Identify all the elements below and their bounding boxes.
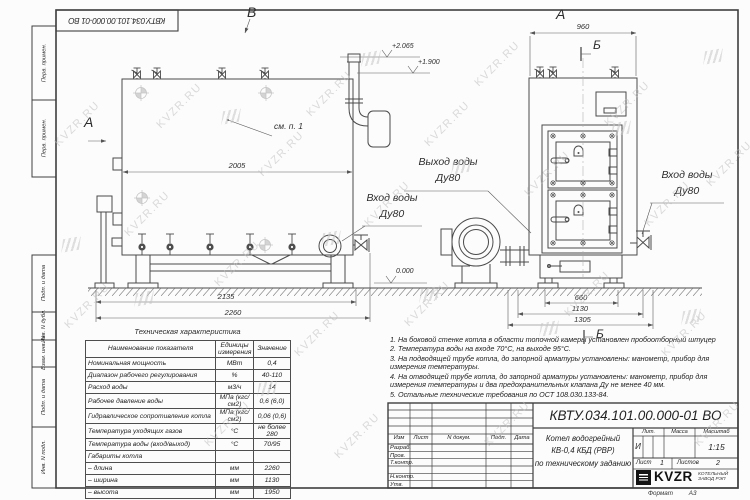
table-row: Гидравлическое сопротивление котлаМПа (к… (86, 409, 291, 424)
row-tkontr: Т.контр. (390, 460, 413, 466)
margin-label-2: Перв. примен. (32, 131, 56, 145)
note-5: 5. Остальные технические требования по О… (390, 391, 722, 399)
spec-cell: 1950 (254, 487, 291, 499)
note-4: 4. На отводящей трубе котла, до запорной… (390, 373, 722, 390)
spec-cell: Диапазон рабочего регулирования (86, 370, 216, 382)
spec-cell (254, 451, 291, 463)
spec-cell: мм (216, 475, 254, 487)
margin-label-5: Взам. инв. N (32, 346, 56, 360)
dim-2005: 2005 (207, 161, 267, 170)
scale-value: 1:15 (695, 442, 738, 452)
brand-subtitle-line2: ЗАВОД РЭП (698, 477, 736, 483)
format-label: Формат А3 (648, 490, 696, 497)
table-row: – ширинамм1130 (86, 475, 291, 487)
spec-cell: – ширина (86, 475, 216, 487)
table-row: Диапазон рабочего регулирования%40-110 (86, 370, 291, 382)
scale-header: Масштаб (695, 429, 738, 435)
spec-cell: Рабочее давление воды (86, 394, 216, 409)
top-stamp-doc-number: КВТУ.034.101.00.000-01 ВО (56, 10, 178, 31)
lit-header: Лит. (633, 429, 664, 435)
outlet-label-line2: Ду80 (406, 172, 490, 184)
see-note-callout: см. п. 1 (274, 121, 303, 131)
technical-notes: 1. На боковой стенке котла в области топ… (390, 336, 722, 400)
spec-table-title: Техническая характеристика (85, 327, 290, 336)
sheets-label: Листов (677, 460, 699, 466)
table-row: Температура воды (вход/выход)°С70/95 (86, 439, 291, 451)
lit-value: И (633, 442, 643, 451)
brand-subtitle: КОТЕЛЬНЫЙ ЗАВОД РЭП (698, 472, 736, 484)
spec-cell: 0,4 (254, 358, 291, 370)
title-block-doc-number: КВТУ.034.101.00.000-01 ВО (535, 405, 736, 426)
inlet-label-left-line2: Ду80 (352, 208, 432, 220)
spec-table: Наименование показателя Единицы измерени… (85, 340, 291, 499)
dim-1305: 1305 (550, 315, 615, 324)
spec-cell: МВт (216, 358, 254, 370)
spec-header-name: Наименование показателя (86, 341, 216, 358)
drawing-sheet: Перв. примен. Перв. примен. Подп. и дата… (0, 0, 750, 500)
spec-cell: 14 (254, 382, 291, 394)
spec-cell: м3/ч (216, 382, 254, 394)
note-3: 3. На подводящей трубе котла, до запорно… (390, 355, 722, 372)
col-data: Дата (511, 435, 533, 441)
format-size: А3 (689, 490, 697, 497)
elevation-mark-mid: +1.900 (418, 59, 440, 66)
dim-660: 660 (551, 293, 611, 302)
kvzr-logo-icon (636, 470, 651, 485)
product-title: Котел водогрейный КВ-0,4 КБД (РВР) по те… (534, 433, 632, 470)
spec-cell: мм (216, 487, 254, 499)
spec-cell: Гидравлическое сопротивление котла (86, 409, 216, 424)
spec-cell: мм (216, 463, 254, 475)
spec-cell: МПа (кгс/см2) (216, 409, 254, 424)
product-title-line3: по техническому заданию (534, 458, 632, 470)
spec-cell: 2260 (254, 463, 291, 475)
elevation-mark-top: +2.065 (392, 43, 414, 50)
outlet-label-line1: Выход воды (406, 156, 490, 168)
spec-cell: Температура уходящих газов (86, 424, 216, 439)
product-title-line1: Котел водогрейный (534, 433, 632, 445)
spec-cell: 0,6 (6,0) (254, 394, 291, 409)
spec-cell: °С (216, 424, 254, 439)
row-razrab: Разраб. (390, 445, 411, 451)
table-row: Номинальная мощностьМВт0,4 (86, 358, 291, 370)
margin-label-7: Инв. N подл. (32, 450, 56, 464)
spec-header-value: Значение (254, 341, 291, 358)
table-row: – длинамм2260 (86, 463, 291, 475)
inlet-label-right-line2: Ду80 (647, 185, 727, 197)
inlet-label-left-line1: Вход воды (352, 192, 432, 204)
elevation-mark-zero: 0.000 (396, 268, 414, 275)
sheet-label: Лист (636, 460, 651, 466)
spec-cell: не более 280 (254, 424, 291, 439)
spec-cell: 70/95 (254, 439, 291, 451)
row-utv: Утв. (390, 482, 403, 488)
col-dokum: N докум. (432, 435, 486, 441)
format-word: Формат (648, 490, 673, 497)
product-title-line2: КВ-0,4 КБД (РВР) (534, 445, 632, 457)
row-prov: Пров. (390, 453, 405, 459)
table-row: Температура уходящих газов°Сне более 280 (86, 424, 291, 439)
spec-cell: % (216, 370, 254, 382)
col-list: Лист (410, 435, 432, 441)
note-1: 1. На боковой стенке котла в области топ… (390, 336, 722, 344)
row-nkontr: Н.контр. (390, 474, 415, 480)
spec-cell: °С (216, 439, 254, 451)
margin-label-3: Подп. и дата (32, 276, 56, 290)
margin-label-4: Инв. N дубл. (32, 319, 56, 333)
spec-cell: Расход воды (86, 382, 216, 394)
note-2: 2. Температура воды на входе 70°С, на вы… (390, 345, 722, 353)
spec-header-row: Наименование показателя Единицы измерени… (86, 341, 291, 358)
spec-cell (216, 451, 254, 463)
spec-cell: 1130 (254, 475, 291, 487)
left-view-boiler-side (95, 54, 390, 288)
spec-cell: – длина (86, 463, 216, 475)
view-arrow-label-a-left: А (84, 114, 93, 130)
dim-960: 960 (553, 22, 613, 31)
spec-cell: 40-110 (254, 370, 291, 382)
coil-glyph-icon (639, 473, 648, 482)
dim-2135: 2135 (196, 292, 256, 301)
table-row: – высотамм1950 (86, 487, 291, 499)
brand-name: KVZR (654, 469, 693, 484)
table-row: Рабочее давление водыМПа (кгс/см2)0,6 (6… (86, 394, 291, 409)
table-row: Расход водым3/ч14 (86, 382, 291, 394)
sheets-value: 2 (716, 460, 720, 467)
spec-cell: Температура воды (вход/выход) (86, 439, 216, 451)
col-podp: Подп. (486, 435, 511, 441)
spec-cell: – высота (86, 487, 216, 499)
margin-label-1: Перв. примен. (32, 56, 56, 70)
dim-2260: 2260 (203, 308, 263, 317)
spec-cell: Габариты котла (86, 451, 216, 463)
inlet-label-right-line1: Вход воды (647, 169, 727, 181)
col-izm: Изм (388, 435, 410, 441)
spec-header-units: Единицы измерения (216, 341, 254, 358)
section-label-b-top: Б (593, 38, 601, 52)
margin-label-6: Подп. и дата (32, 390, 56, 404)
view-arrow-label-b-top: В (247, 4, 256, 20)
sheet-value: 1 (660, 460, 664, 467)
spec-cell: Номинальная мощность (86, 358, 216, 370)
view-label-a-right: А (556, 6, 565, 22)
spec-cell: МПа (кгс/см2) (216, 394, 254, 409)
table-row: Габариты котла (86, 451, 291, 463)
spec-cell: 0,06 (0,6) (254, 409, 291, 424)
mass-header: Масса (664, 429, 695, 435)
dim-1130: 1130 (550, 304, 610, 313)
